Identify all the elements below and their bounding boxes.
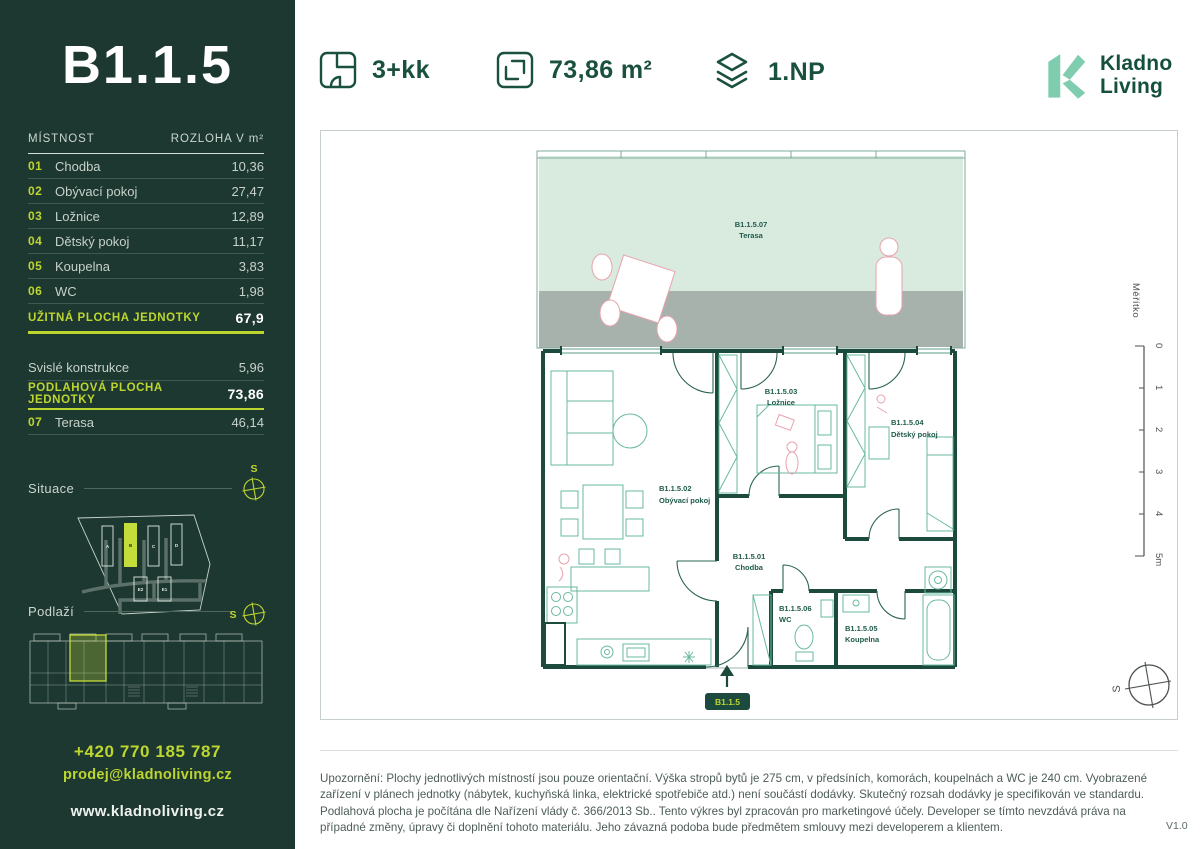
svg-text:S: S	[229, 609, 236, 621]
floorplan-container: B1.1.5.07 Terasa B1.1.5.02 Obývací pokoj…	[320, 130, 1178, 720]
usable-area-value: 67,9	[236, 310, 264, 326]
entry-marker: B1.1.5	[705, 665, 750, 710]
svg-text:B1.1.5.04: B1.1.5.04	[891, 418, 924, 427]
row-area: 27,47	[231, 184, 264, 199]
room-table: MÍSTNOST ROZLOHA V m² 01 Chodba 10,36 02…	[28, 133, 264, 435]
floorplan-drawing: B1.1.5.07 Terasa B1.1.5.02 Obývací pokoj…	[321, 131, 1177, 719]
terrace-row: 07 Terasa 46,14	[28, 410, 264, 435]
scale-bar: Měřítko 0 1 2 3 4 5m	[1130, 283, 1164, 566]
unit-title: B1.1.5	[0, 34, 295, 96]
table-row: 04 Dětský pokoj 11,17	[28, 229, 264, 254]
row-num: 07	[28, 415, 55, 429]
row-name: WC	[55, 284, 77, 299]
construction-label: Svislé konstrukce	[28, 360, 129, 375]
usable-area-label: UŽITNÁ PLOCHA JEDNOTKY	[28, 312, 201, 324]
row-area: 3,83	[239, 259, 264, 274]
row-num: 04	[28, 234, 55, 248]
spec-floor-value: 1.NP	[768, 58, 825, 87]
svg-text:3: 3	[1153, 469, 1164, 474]
row-name: Chodba	[55, 159, 101, 174]
svg-text:B1.1.5.05: B1.1.5.05	[845, 624, 878, 633]
row-area: 12,89	[231, 209, 264, 224]
situace-label: Situace	[28, 481, 74, 496]
row-num: 05	[28, 259, 55, 273]
row-name: Ložnice	[55, 209, 100, 224]
spec-floor: 1.NP	[710, 50, 825, 94]
svg-text:Ložnice: Ložnice	[767, 398, 795, 407]
svg-text:Měřítko: Měřítko	[1130, 283, 1141, 318]
building-label: D	[175, 543, 179, 548]
plan-compass-icon: S	[1111, 662, 1171, 708]
row-area: 10,36	[231, 159, 264, 174]
floor-area-label: PODLAHOVÁ PLOCHA JEDNOTKY	[28, 382, 227, 406]
podlazi-section: Podlaží S	[28, 601, 266, 726]
divider	[84, 611, 232, 612]
svg-text:Terasa: Terasa	[739, 231, 763, 240]
row-num: 01	[28, 159, 55, 173]
svg-text:B1.1.5.01: B1.1.5.01	[733, 552, 766, 561]
building-label: E2	[138, 587, 144, 592]
phone-link[interactable]: +420 770 185 787	[0, 742, 295, 762]
floor-area-row: PODLAHOVÁ PLOCHA JEDNOTKY 73,86	[28, 381, 264, 408]
svg-text:B1.1.5.07: B1.1.5.07	[735, 220, 768, 229]
kladno-living-logo: Kladno Living	[1042, 50, 1172, 100]
page: B1.1.5 MÍSTNOST ROZLOHA V m² 01 Chodba 1…	[0, 0, 1200, 849]
building-label: E1	[162, 587, 168, 592]
table-row: 06 WC 1,98	[28, 279, 264, 304]
footer-divider	[320, 750, 1178, 751]
svg-text:S: S	[1111, 685, 1123, 692]
usable-area-row: UŽITNÁ PLOCHA JEDNOTKY 67,9	[28, 304, 264, 331]
logo-text: Kladno Living	[1100, 52, 1172, 98]
table-row: 01 Chodba 10,36	[28, 154, 264, 179]
svg-text:Koupelna: Koupelna	[845, 635, 880, 644]
col-area: ROZLOHA V m²	[171, 133, 264, 145]
table-row: 02 Obývací pokoj 27,47	[28, 179, 264, 204]
construction-row: Svislé konstrukce 5,96	[28, 356, 264, 381]
svg-text:WC: WC	[779, 615, 792, 624]
svg-text:B1.1.5.06: B1.1.5.06	[779, 604, 812, 613]
row-area: 46,14	[231, 415, 264, 430]
layers-icon	[710, 50, 754, 94]
compass-icon: S	[238, 462, 270, 504]
spec-area-value: 73,86 m²	[549, 56, 652, 85]
version-label: V1.0	[1166, 820, 1188, 832]
svg-text:S: S	[250, 463, 257, 475]
highlighted-unit	[70, 635, 106, 681]
row-area: 11,17	[232, 234, 264, 249]
spec-layout-value: 3+kk	[372, 56, 430, 85]
logo-mark-icon	[1042, 50, 1088, 100]
row-name: Obývací pokoj	[55, 184, 137, 199]
svg-text:Dětský pokoj: Dětský pokoj	[891, 430, 938, 439]
row-num: 06	[28, 284, 55, 298]
spec-area: 73,86 m²	[495, 50, 652, 90]
svg-text:Obývací pokoj: Obývací pokoj	[659, 496, 710, 505]
compass-icon: S	[226, 601, 270, 627]
sidebar: B1.1.5 MÍSTNOST ROZLOHA V m² 01 Chodba 1…	[0, 0, 295, 849]
area-icon	[495, 50, 535, 90]
divider	[84, 488, 232, 489]
podlazi-label: Podlaží	[28, 604, 74, 619]
pink-accents	[559, 395, 887, 581]
floorplan-icon	[318, 50, 358, 90]
email-link[interactable]: prodej@kladnoliving.cz	[0, 767, 295, 783]
row-area: 1,98	[239, 284, 264, 299]
svg-text:B1.1.5.02: B1.1.5.02	[659, 484, 692, 493]
svg-text:B1.1.5.03: B1.1.5.03	[765, 387, 798, 396]
svg-text:2: 2	[1153, 427, 1164, 432]
floor-area-value: 73,86	[227, 386, 264, 402]
construction-value: 5,96	[239, 360, 264, 375]
floor-strip	[28, 631, 264, 721]
room-table-header: MÍSTNOST ROZLOHA V m²	[28, 133, 264, 154]
website-link[interactable]: www.kladnoliving.cz	[0, 803, 295, 820]
svg-text:4: 4	[1153, 511, 1164, 516]
row-num: 02	[28, 184, 55, 198]
row-name: Koupelna	[55, 259, 110, 274]
table-row: 03 Ložnice 12,89	[28, 204, 264, 229]
spec-layout: 3+kk	[318, 50, 430, 90]
apartment-walls	[543, 349, 955, 667]
row-name: Dětský pokoj	[55, 234, 129, 249]
disclaimer-text: Upozornění: Plochy jednotlivých místnost…	[320, 771, 1166, 837]
col-room: MÍSTNOST	[28, 133, 95, 145]
row-num: 03	[28, 209, 55, 223]
contact-block: +420 770 185 787 prodej@kladnoliving.cz …	[0, 742, 295, 820]
svg-text:B1.1.5: B1.1.5	[715, 697, 740, 707]
table-row: 05 Koupelna 3,83	[28, 254, 264, 279]
svg-text:1: 1	[1153, 385, 1164, 390]
row-name: Terasa	[55, 415, 94, 430]
svg-text:5m: 5m	[1153, 553, 1164, 566]
svg-text:0: 0	[1153, 343, 1164, 348]
building-label: C	[152, 544, 156, 549]
building-label: A	[106, 544, 110, 549]
svg-text:Chodba: Chodba	[735, 563, 764, 572]
